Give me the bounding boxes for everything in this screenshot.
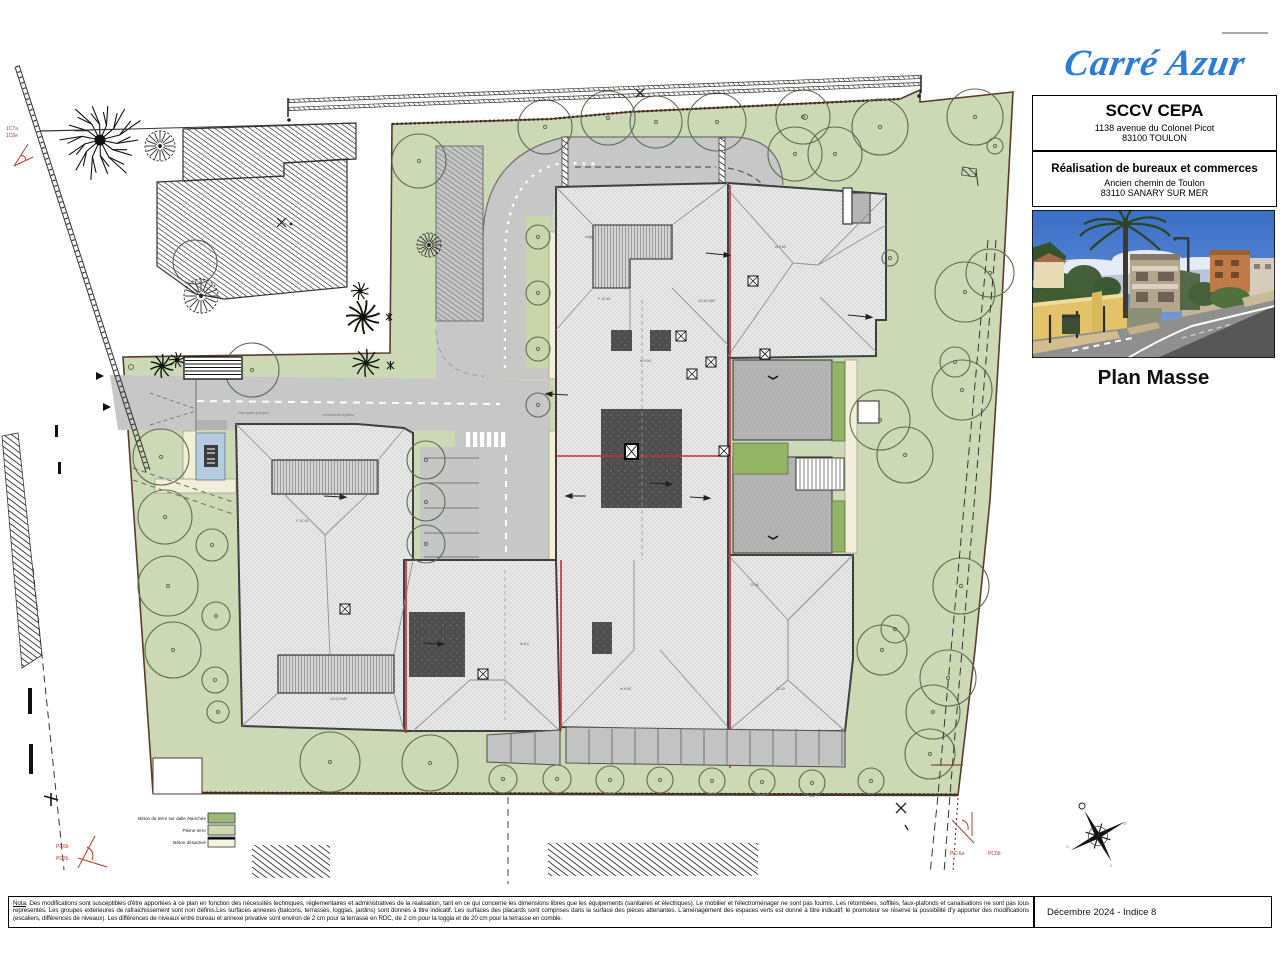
svg-text:F 12.40: F 12.40 [598,297,610,301]
svg-text:PC7b: PC7b [56,856,69,862]
svg-text:acces: acces [655,429,665,433]
svg-text:F 12.10: F 12.10 [296,519,308,523]
svg-text:ht 9.60: ht 9.60 [775,245,786,249]
svg-text:ridge: ridge [585,235,593,239]
svg-text:ht 9.60: ht 9.60 [620,687,631,691]
svg-text:12.40: 12.40 [750,583,759,587]
svg-text:1C6e: 1C6e [6,133,18,139]
svg-text:Béton désactivé: Béton désactivé [173,840,206,845]
svg-text:12.10 NGF: 12.10 NGF [330,697,348,701]
svg-text:PC-6a: PC-6a [950,851,964,857]
svg-text:O: O [1066,845,1069,849]
svg-text:Pleine terre: Pleine terre [183,828,207,833]
svg-text:voie acces pompier: voie acces pompier [238,411,270,415]
svg-text:Béton de terre sur dalle étanc: Béton de terre sur dalle étanchée [138,816,206,821]
svg-text:12.40: 12.40 [776,687,785,691]
svg-text:cheminement pieton: cheminement pieton [322,413,354,417]
svg-text:1C7a: 1C7a [6,126,18,132]
svg-text:12.40 NGF: 12.40 NGF [698,299,716,303]
svg-text:PC6b: PC6b [56,844,69,850]
svg-text:ht 6.2: ht 6.2 [520,642,529,646]
svg-text:S: S [1110,864,1113,868]
svg-text:PC6b: PC6b [988,851,1001,857]
svg-text:E: E [1124,822,1127,826]
